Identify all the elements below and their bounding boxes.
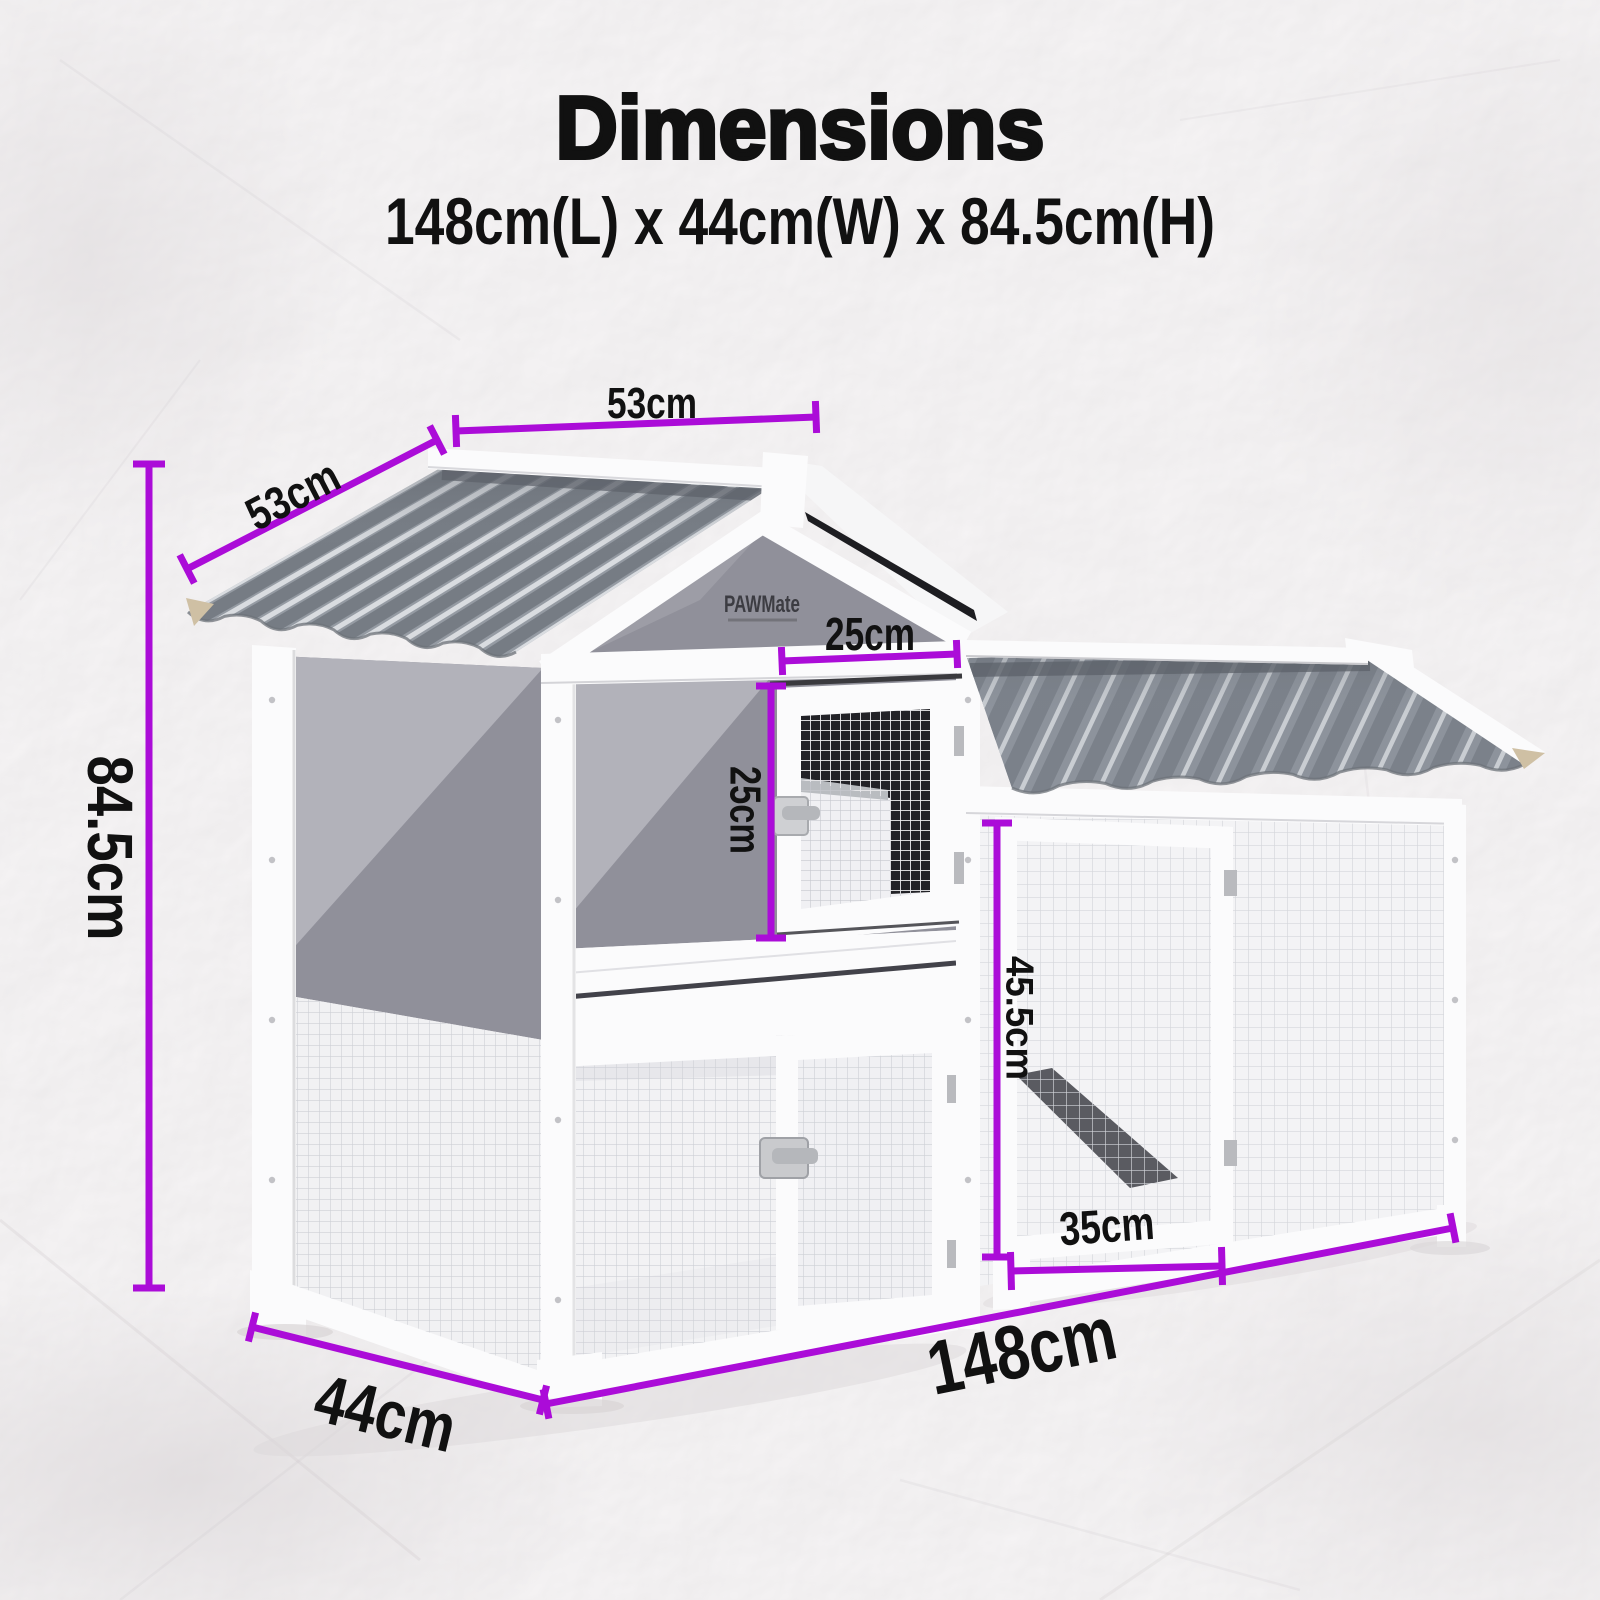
svg-text:PAWMate: PAWMate bbox=[724, 591, 800, 618]
svg-text:35cm: 35cm bbox=[1058, 1196, 1156, 1255]
svg-text:84.5cm: 84.5cm bbox=[74, 756, 146, 941]
svg-text:25cm: 25cm bbox=[825, 608, 915, 660]
svg-text:Dimensions: Dimensions bbox=[556, 78, 1045, 177]
svg-text:53cm: 53cm bbox=[607, 379, 697, 428]
svg-text:148cm(L) x 44cm(W) x 84.5cm(H): 148cm(L) x 44cm(W) x 84.5cm(H) bbox=[385, 184, 1215, 258]
svg-text:45.5cm: 45.5cm bbox=[998, 956, 1041, 1080]
svg-text:25cm: 25cm bbox=[720, 766, 769, 854]
